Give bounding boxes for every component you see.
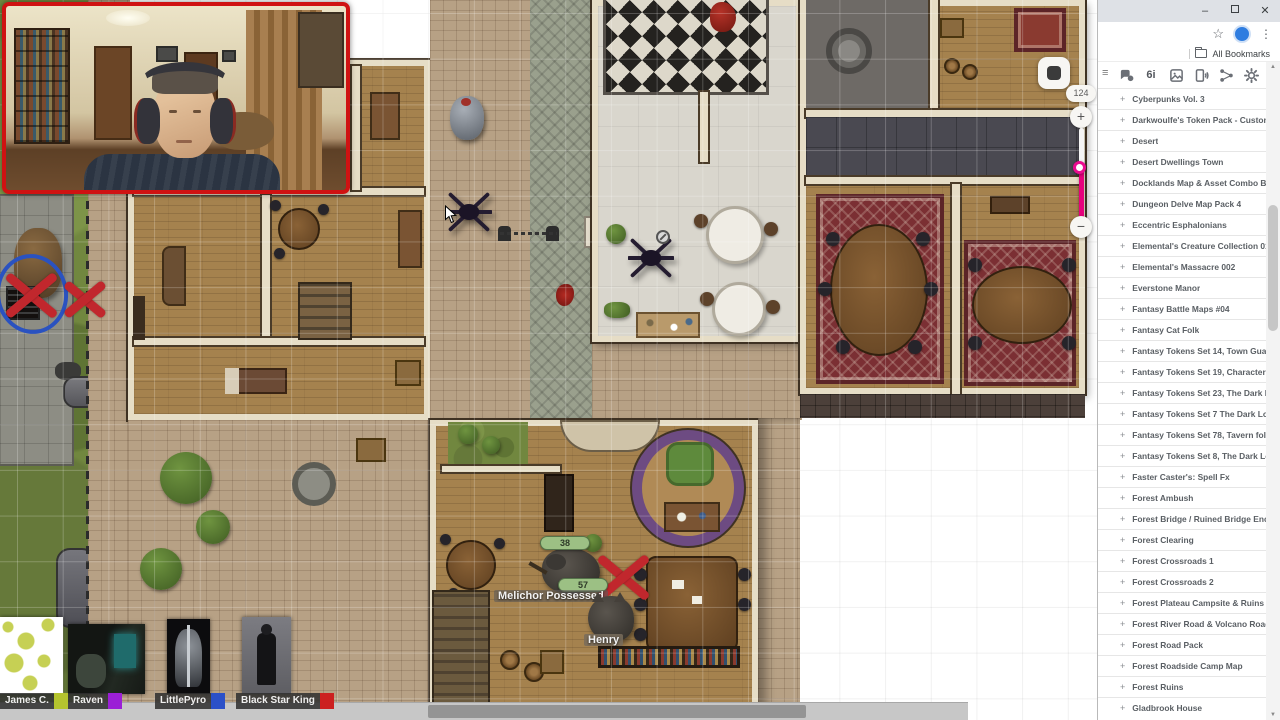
library-item[interactable]: + Everstone Manor	[1098, 277, 1266, 298]
player-nameplate: James C.	[0, 693, 68, 709]
expander-icon[interactable]: +	[1120, 241, 1125, 251]
library-item[interactable]: + Fantasy Tokens Set 7 The Dark Lord's .…	[1098, 403, 1266, 424]
crate	[940, 18, 964, 38]
library-item[interactable]: + Forest Roadside Camp Map	[1098, 655, 1266, 676]
library-item[interactable]: + Fantasy Tokens Set 19, Character Folio…	[1098, 361, 1266, 382]
vtt-window: 38 57 Melichor Possessed Henry 124 + − J…	[0, 0, 1097, 720]
player-nameplate: Raven	[68, 693, 122, 709]
road-right	[758, 418, 800, 710]
expander-icon[interactable]: +	[1120, 388, 1125, 398]
browser-menu-icon[interactable]: ⋮	[1260, 27, 1272, 41]
tree	[140, 548, 182, 590]
divider	[1189, 49, 1190, 59]
library-item[interactable]: + Forest Clearing	[1098, 529, 1266, 550]
chair	[318, 204, 329, 215]
tavern-stairs	[432, 590, 490, 706]
paper	[672, 580, 684, 589]
horizontal-scrollbar[interactable]	[0, 702, 968, 720]
expander-icon[interactable]: +	[1120, 619, 1125, 629]
library-item-label: Gladbrook House	[1132, 703, 1202, 713]
library-item[interactable]: + Forest Plateau Campsite & Ruins	[1098, 592, 1266, 613]
spiral-stair	[826, 28, 872, 74]
wall	[442, 466, 560, 472]
player-video-raven[interactable]	[68, 624, 145, 694]
expander-icon[interactable]: +	[1120, 283, 1125, 293]
settings-gear-icon[interactable]	[1243, 67, 1259, 83]
expander-icon[interactable]: +	[1120, 199, 1125, 209]
barrel	[962, 64, 978, 80]
library-item-label: Forest Crossroads 1	[1132, 556, 1213, 566]
zoom-slider-handle[interactable]	[1073, 161, 1086, 174]
expander-icon[interactable]: +	[1120, 640, 1125, 650]
eye	[193, 110, 201, 113]
library-item[interactable]: + Faster Caster's: Spell Fx	[1098, 466, 1266, 487]
expander-icon[interactable]: +	[1120, 598, 1125, 608]
stairs	[298, 282, 352, 340]
wall	[806, 110, 1080, 117]
token-label-henry: Henry	[584, 634, 623, 646]
potted-plant	[606, 224, 626, 244]
tree	[196, 510, 230, 544]
library-item-label: Forest Road Pack	[1132, 640, 1203, 650]
crate	[395, 360, 421, 386]
picture-frame	[156, 46, 178, 62]
expander-icon[interactable]: +	[1120, 136, 1125, 146]
cluttered-counter	[636, 312, 700, 338]
expander-icon[interactable]: +	[1120, 346, 1125, 356]
pillow	[225, 368, 239, 394]
kitchen-table	[446, 540, 496, 590]
library-item-label: Fantasy Tokens Set 23, The Dark Lord'...	[1132, 388, 1266, 398]
player-video-littlepyro[interactable]	[167, 619, 210, 694]
picture-frame	[298, 12, 344, 88]
library-item-label: Fantasy Tokens Set 14, Town Guards	[1132, 346, 1266, 356]
browser-window: – ✕ ☆ ⋮ All Bookmarks ≡ 6i +	[1097, 0, 1280, 720]
barrel	[500, 650, 520, 670]
library-item[interactable]: + Desert Dwellings Town	[1098, 151, 1266, 172]
shelf	[133, 296, 145, 340]
library-item[interactable]: + Eccentric Esphalonians	[1098, 214, 1266, 235]
headphone-cup	[210, 98, 236, 144]
library-item[interactable]: + Elemental's Creature Collection 015	[1098, 235, 1266, 256]
vertical-scrollbar-thumb[interactable]	[1268, 205, 1278, 331]
library-item-label: Elemental's Massacre 002	[1132, 262, 1235, 272]
library-item[interactable]: + Forest Road Pack	[1098, 634, 1266, 655]
expander-icon[interactable]: +	[1120, 535, 1125, 545]
oval-table-right	[972, 266, 1072, 344]
cabinet	[544, 474, 574, 532]
hp-bar: 38	[540, 536, 590, 550]
dark-square-icon	[1047, 66, 1061, 80]
player-name: James C.	[0, 693, 54, 709]
library-item-label: Everstone Manor	[1132, 283, 1200, 293]
zoom-out-button[interactable]: −	[1070, 216, 1092, 238]
token-label-melichor: Melichor Possessed	[494, 590, 608, 602]
dark-hallway	[806, 117, 1080, 177]
desk	[664, 502, 720, 532]
scroll-up-arrow[interactable]: ▲	[1266, 64, 1280, 70]
expander-icon[interactable]: +	[1120, 493, 1125, 503]
expander-icon[interactable]: +	[1120, 556, 1125, 566]
library-item-label: Forest Ruins	[1132, 682, 1183, 692]
expander-icon[interactable]: +	[1120, 178, 1125, 188]
wall	[700, 92, 708, 162]
browser-toolbar: ☆ ⋮	[1098, 22, 1280, 46]
bookmarks-bar: All Bookmarks	[1098, 46, 1280, 62]
profile-avatar[interactable]	[1233, 25, 1251, 43]
minimize-button[interactable]: –	[1190, 0, 1220, 22]
library-item[interactable]: + Dungeon Delve Map Pack 4	[1098, 193, 1266, 214]
oval-table-left	[830, 224, 928, 356]
library-item-label: Elemental's Creature Collection 015	[1132, 241, 1266, 251]
library-item[interactable]: + Desert	[1098, 130, 1266, 151]
checker-floor-room	[606, 0, 766, 92]
player-color-swatch	[320, 693, 334, 709]
library-item-label: Fantasy Tokens Set 8, The Dark Lord's ..…	[1132, 451, 1266, 461]
body-token	[710, 2, 736, 32]
library-item-label: Fantasy Tokens Set 19, Character Folio 2	[1132, 367, 1266, 377]
webcam-feed	[2, 2, 350, 194]
status-icon	[656, 230, 670, 244]
library-item-label: Forest River Road & Volcano Road Map	[1132, 619, 1266, 629]
expander-icon[interactable]: +	[1120, 409, 1125, 419]
expander-icon[interactable]: +	[1120, 703, 1125, 713]
all-bookmarks-label[interactable]: All Bookmarks	[1212, 49, 1270, 59]
library-item-label: Dungeon Delve Map Pack 4	[1132, 199, 1241, 209]
chain	[500, 232, 557, 235]
expander-icon[interactable]: +	[1120, 94, 1125, 104]
screen: 38 57 Melichor Possessed Henry 124 + − J…	[0, 0, 1280, 720]
hamburger-icon[interactable]: ≡	[1102, 67, 1108, 79]
library-item[interactable]: + Cyberpunks Vol. 3	[1098, 88, 1266, 109]
library-item[interactable]: + Fantasy Battle Maps #04	[1098, 298, 1266, 319]
chair	[274, 248, 285, 259]
sideboard	[990, 196, 1030, 214]
library-item-label: Fantasy Cat Folk	[1132, 325, 1199, 335]
chat-icon[interactable]	[1118, 67, 1134, 83]
player-color-swatch	[54, 693, 68, 709]
ceiling-light	[106, 10, 150, 26]
maximize-icon	[1231, 5, 1239, 13]
library-item[interactable]: + Elemental's Massacre 002	[1098, 256, 1266, 277]
vertical-scrollbar[interactable]: ▲ ▼	[1266, 62, 1280, 720]
player-name: Black Star King	[236, 693, 320, 709]
wall	[806, 177, 1080, 184]
library-item-label: Docklands Map & Asset Combo Bundle	[1132, 178, 1266, 188]
expander-icon[interactable]: +	[1120, 325, 1125, 335]
library-item[interactable]: + Fantasy Tokens Set 78, Tavern folk	[1098, 424, 1266, 445]
close-button[interactable]: ✕	[1250, 0, 1280, 22]
library-item[interactable]: + Docklands Map & Asset Combo Bundle	[1098, 172, 1266, 193]
scroll-down-arrow[interactable]: ▼	[1266, 712, 1280, 718]
expander-icon[interactable]: +	[1120, 367, 1125, 377]
library-item-label: Forest Plateau Campsite & Ruins	[1132, 598, 1264, 608]
bookshelf	[598, 646, 740, 668]
player-nameplate: LittlePyro	[155, 693, 225, 709]
library-item[interactable]: + Gladbrook House	[1098, 697, 1266, 718]
library-item-label: Fantasy Tokens Set 78, Tavern folk	[1132, 430, 1266, 440]
paper	[692, 596, 702, 604]
expander-icon[interactable]: +	[1120, 472, 1125, 482]
library-item[interactable]: + Forest Ruins	[1098, 676, 1266, 697]
library-item-label: Fantasy Battle Maps #04	[1132, 304, 1229, 314]
wall	[930, 0, 938, 112]
player-color-swatch	[211, 693, 225, 709]
expander-icon[interactable]: +	[1120, 577, 1125, 587]
library-item[interactable]: + Forest Ambush	[1098, 487, 1266, 508]
expander-icon[interactable]: +	[1120, 514, 1125, 524]
library-item[interactable]: + Fantasy Tokens Set 23, The Dark Lord'.…	[1098, 382, 1266, 403]
tree	[160, 452, 212, 504]
library-item-label: Forest Ambush	[1132, 493, 1193, 503]
expander-icon[interactable]: +	[1120, 661, 1125, 671]
sofa	[162, 246, 186, 306]
well	[292, 462, 336, 506]
wall	[952, 184, 960, 394]
red-x-marker	[62, 268, 108, 326]
library-item-label: Forest Roadside Camp Map	[1132, 661, 1242, 671]
player-video-blackstarking[interactable]	[242, 617, 291, 694]
player-color-swatch	[108, 693, 122, 709]
library-item[interactable]: + Forest Bridge / Ruined Bridge Encount.…	[1098, 508, 1266, 529]
expander-icon[interactable]: +	[1120, 451, 1125, 461]
player-nameplate: Black Star King	[236, 693, 334, 709]
barrel	[944, 58, 960, 74]
library-item-label: Forest Clearing	[1132, 535, 1193, 545]
library-item-label: Forest Bridge / Ruined Bridge Encount...	[1132, 514, 1266, 524]
expander-icon[interactable]: +	[1120, 430, 1125, 440]
expander-icon[interactable]: +	[1120, 304, 1125, 314]
headphone-band	[140, 62, 230, 104]
bush	[458, 424, 478, 444]
library-item-label: Eccentric Esphalonians	[1132, 220, 1227, 230]
horizontal-scrollbar-thumb[interactable]	[428, 705, 806, 718]
plaza	[592, 340, 802, 420]
expander-icon[interactable]: +	[1120, 682, 1125, 692]
zoom-slider-track-lower[interactable]	[1079, 170, 1084, 218]
door	[94, 46, 132, 140]
street-dark	[800, 394, 1085, 418]
mouse-cursor	[444, 205, 457, 224]
mouth	[176, 140, 192, 143]
round-table-white	[706, 206, 764, 264]
bookmark-star-icon[interactable]: ☆	[1212, 26, 1224, 42]
plant	[604, 302, 630, 318]
wall	[262, 195, 270, 343]
library-item-label: Desert Dwellings Town	[1132, 157, 1223, 167]
expander-icon[interactable]: +	[1120, 157, 1125, 167]
zoom-in-button[interactable]: +	[1070, 106, 1092, 128]
browser-titlebar: – ✕	[1098, 0, 1280, 22]
player-video-james[interactable]	[0, 617, 63, 694]
library-item-label: Desert	[1132, 136, 1158, 146]
table	[370, 92, 400, 140]
library-item-label: Fantasy Tokens Set 7 The Dark Lord's ...	[1132, 409, 1266, 419]
expander-icon[interactable]: +	[1120, 262, 1125, 272]
library-item[interactable]: + Fantasy Cat Folk	[1098, 319, 1266, 340]
wall	[352, 66, 360, 190]
round-table	[278, 208, 320, 250]
chair	[270, 200, 281, 211]
share-icon[interactable]	[1218, 67, 1234, 83]
maximize-button[interactable]	[1220, 0, 1250, 22]
person-torso	[84, 154, 280, 194]
library-item-label: Darkwoulfe's Token Pack - Customizab...	[1132, 115, 1266, 125]
library-item[interactable]: + Fantasy Tokens Set 14, Town Guards	[1098, 340, 1266, 361]
bookshelf	[14, 28, 70, 144]
wall	[134, 338, 424, 345]
picture-frame	[222, 50, 236, 62]
library-item-label: Cyberpunks Vol. 3	[1132, 94, 1204, 104]
image-icon[interactable]	[1168, 67, 1184, 83]
dice-6i-icon[interactable]: 6i	[1143, 67, 1159, 83]
small-rug	[1014, 8, 1066, 52]
bush	[482, 436, 500, 454]
desk	[398, 210, 422, 268]
library-item-label: Forest Crossroads 2	[1132, 577, 1213, 587]
library-toolbar: ≡ 6i	[1098, 62, 1280, 88]
player-name: Raven	[68, 693, 108, 709]
folder-icon	[1195, 49, 1207, 58]
zoom-level-badge: 124	[1066, 85, 1096, 102]
green-armchair	[666, 442, 714, 486]
library-item-label: Faster Caster's: Spell Fx	[1132, 472, 1229, 482]
guard-token[interactable]	[450, 96, 484, 140]
crate	[356, 438, 386, 462]
headphone-cup	[134, 98, 160, 144]
library-item[interactable]: + Forest River Road & Volcano Road Map	[1098, 613, 1266, 634]
crate	[540, 650, 564, 674]
player-name: LittlePyro	[155, 693, 211, 709]
asset-library-list: + Cyberpunks Vol. 3 + Darkwoulfe's Token…	[1098, 88, 1266, 718]
expander-icon[interactable]: +	[1120, 220, 1125, 230]
expander-icon[interactable]: +	[1120, 115, 1125, 125]
library-item[interactable]: + Fantasy Tokens Set 8, The Dark Lord's …	[1098, 445, 1266, 466]
library-item[interactable]: + Forest Crossroads 1	[1098, 550, 1266, 571]
library-item[interactable]: + Darkwoulfe's Token Pack - Customizab..…	[1098, 109, 1266, 130]
audio-icon[interactable]	[1193, 67, 1209, 83]
herringbone-path	[530, 0, 592, 420]
long-table	[646, 556, 738, 652]
library-item[interactable]: + Forest Crossroads 2	[1098, 571, 1266, 592]
round-table-white	[712, 282, 766, 336]
eye	[169, 110, 177, 113]
map-tool-button[interactable]	[1038, 57, 1070, 89]
